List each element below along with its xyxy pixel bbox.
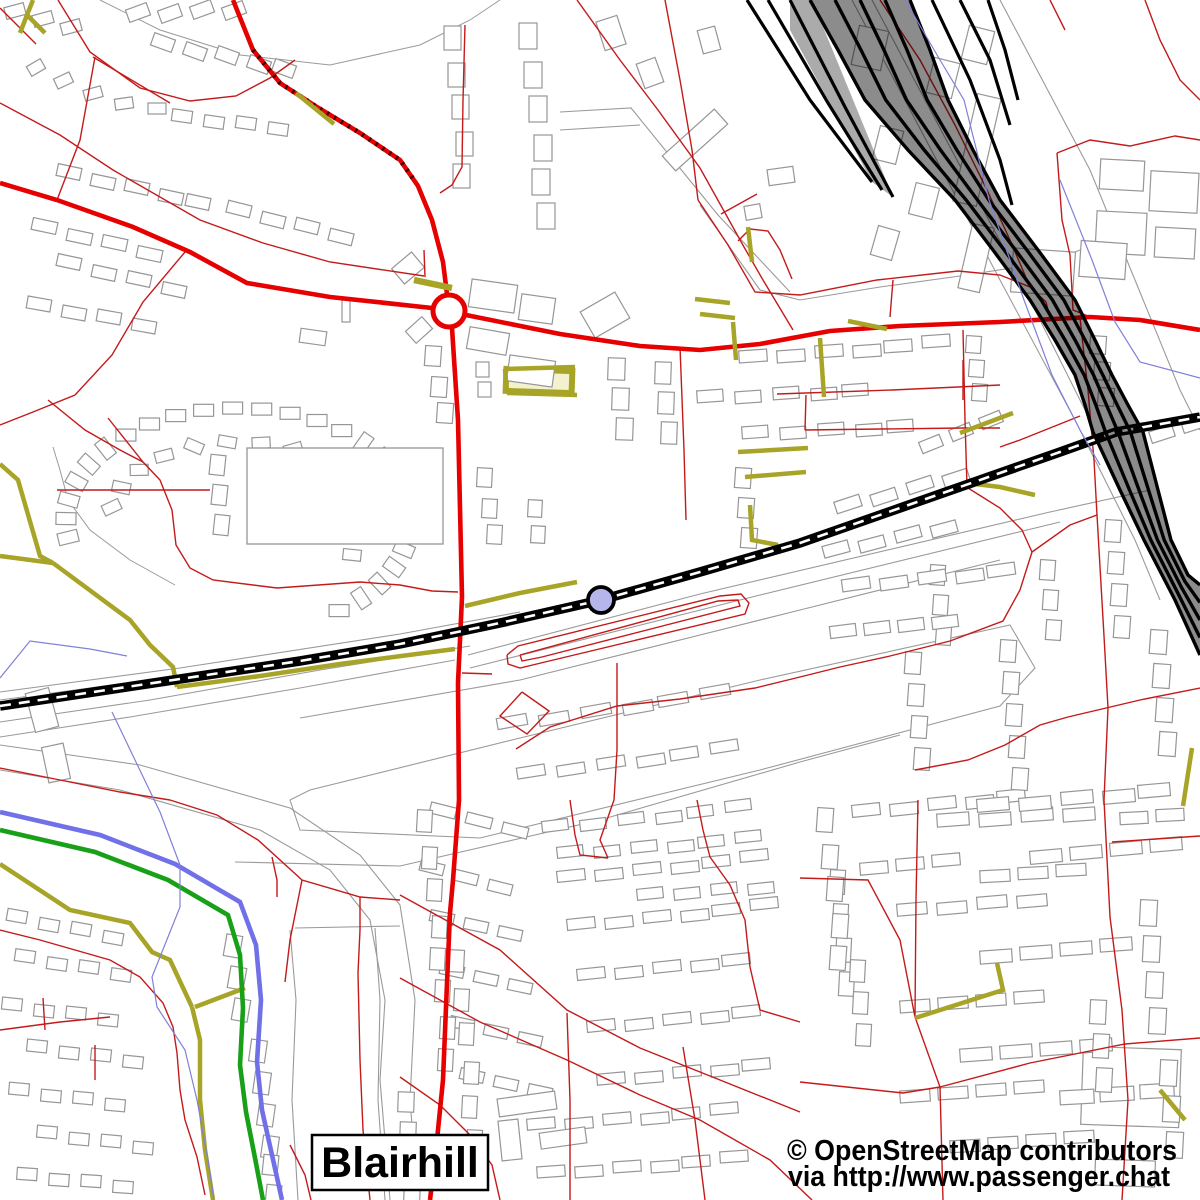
svg-text:Blairhill: Blairhill xyxy=(321,1139,479,1187)
svg-text:via http://www.passenger.chat: via http://www.passenger.chat xyxy=(788,1161,1170,1193)
